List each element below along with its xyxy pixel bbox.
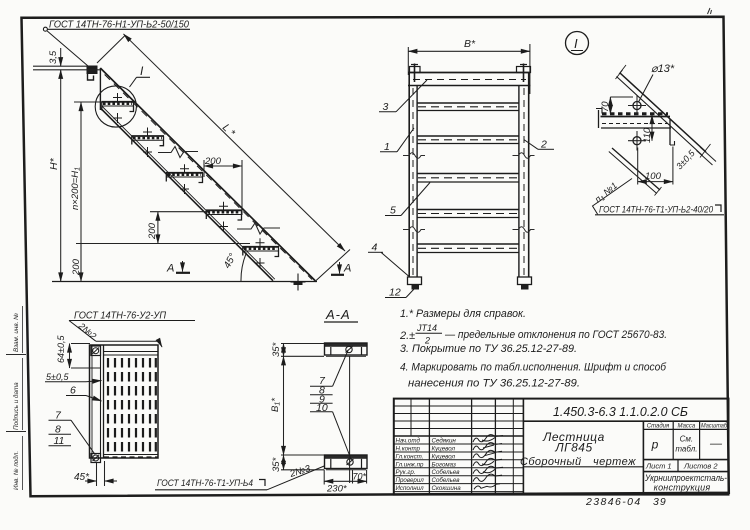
svg-text:Лист 1: Лист 1 [645, 462, 672, 471]
svg-text:Куцевол: Куцевол [432, 453, 456, 460]
svg-text:230*: 230* [326, 484, 347, 495]
svg-text:Укрниипроектсталь-: Укрниипроектсталь- [644, 473, 727, 483]
svg-text:Исполнил: Исполнил [396, 485, 425, 492]
svg-text:Богомаз: Богомаз [432, 461, 456, 468]
svg-text:А: А [166, 263, 174, 275]
svg-text:110: 110 [642, 127, 653, 143]
svg-text:4. Маркировать по табл.испол: 4. Маркировать по табл.исполнения. Шрифт… [400, 362, 667, 374]
svg-text:Масса: Масса [678, 423, 696, 429]
svg-text:р: р [651, 438, 659, 452]
svg-text:3: 3 [383, 101, 389, 113]
svg-text:35*: 35* [271, 342, 282, 357]
svg-text:Собельев: Собельев [432, 477, 461, 484]
svg-text:100: 100 [645, 171, 662, 182]
svg-text:А-А: А-А [325, 307, 351, 322]
svg-text:— предельные отклонения по: — предельные отклонения по ГОСТ 25670-83… [444, 329, 667, 341]
svg-text:ГОСТ 14ТН-76-Т1-УП-Ь4: ГОСТ 14ТН-76-Т1-УП-Ь4 [157, 478, 253, 488]
svg-text:200: 200 [71, 258, 82, 276]
svg-text:2: 2 [540, 139, 547, 151]
svg-text:70: 70 [600, 101, 611, 112]
svg-text:⌀13*: ⌀13* [651, 63, 675, 75]
svg-text:5: 5 [390, 205, 396, 217]
svg-text:А: А [343, 263, 351, 275]
svg-text:200: 200 [204, 156, 222, 167]
svg-text:Подпись и дата: Подпись и дата [12, 382, 20, 430]
svg-text:Собельев: Собельев [432, 469, 461, 476]
svg-text:6: 6 [70, 385, 76, 397]
svg-text:3,5: 3,5 [48, 50, 59, 64]
svg-text:Гл.инж.пр: Гл.инж.пр [396, 461, 425, 468]
svg-text:Масштаб: Масштаб [701, 423, 728, 429]
svg-text:64±0,5: 64±0,5 [56, 335, 66, 363]
svg-text:Скокшина: Скокшина [432, 485, 462, 492]
svg-text:70*: 70* [353, 472, 367, 482]
svg-text:2.±: 2.± [399, 330, 415, 342]
svg-text:1.450.3-6.3 1.1.0.2.0 СБ: 1.450.3-6.3 1.1.0.2.0 СБ [553, 404, 689, 419]
svg-text:35*: 35* [271, 457, 282, 472]
svg-text:В*: В* [464, 38, 476, 50]
svg-text:5±0,5: 5±0,5 [46, 372, 69, 382]
svg-text:23846-04: 23846-04 [585, 496, 642, 508]
svg-text:конструкция: конструкция [654, 482, 711, 492]
svg-text:3. Покрытие по ТУ 36.25.12-2: 3. Покрытие по ТУ 36.25.12-27-89. [400, 343, 577, 355]
svg-text:Седякин: Седякин [432, 438, 457, 445]
svg-text:Сборочный чертеж: Сборочный чертеж [520, 456, 636, 468]
svg-text:200: 200 [147, 222, 158, 240]
svg-text:Н*: Н* [48, 157, 60, 170]
svg-text:Листов 2: Листов 2 [683, 462, 718, 471]
svg-text:1: 1 [384, 141, 390, 153]
svg-text:табл.: табл. [675, 445, 697, 454]
svg-text:I: I [574, 36, 578, 51]
svg-text:ГОСТ 14ТН-76-Т1-УП-Ь2-40/20: ГОСТ 14ТН-76-Т1-УП-Ь2-40/20 [599, 205, 714, 215]
svg-text:нанесения по ТУ 36.25.12-27-: нанесения по ТУ 36.25.12-27-89. [408, 378, 580, 390]
svg-text:Проверил: Проверил [396, 477, 425, 484]
svg-text:Инв. № подл.: Инв. № подл. [12, 451, 20, 490]
svg-text:JТ14: JТ14 [416, 323, 437, 333]
svg-text:ГОСТ 14ТН-76-У2-УП: ГОСТ 14ТН-76-У2-УП [74, 311, 167, 322]
svg-text:39: 39 [653, 496, 667, 508]
svg-text:4: 4 [372, 242, 378, 254]
svg-text:Н.контр: Н.контр [396, 446, 421, 453]
svg-text:n×200=Н1: n×200=Н1 [70, 167, 82, 210]
svg-text:1.* Размеры для справок.: 1.* Размеры для справок. [400, 308, 526, 320]
svg-text:—: — [709, 436, 723, 450]
svg-text:См.: См. [680, 435, 693, 444]
svg-text:ЛГ845: ЛГ845 [554, 441, 592, 455]
svg-text:Стадия: Стадия [647, 423, 670, 429]
svg-text:Взам. инв. №: Взам. инв. № [13, 313, 20, 352]
svg-text:Гл.конст.: Гл.конст. [396, 453, 424, 460]
svg-text:Рук.гр.: Рук.гр. [396, 469, 416, 476]
svg-text:12: 12 [389, 287, 401, 299]
svg-text:Нач.отд: Нач.отд [396, 438, 421, 445]
svg-text:Куцевол: Куцевол [432, 446, 456, 453]
